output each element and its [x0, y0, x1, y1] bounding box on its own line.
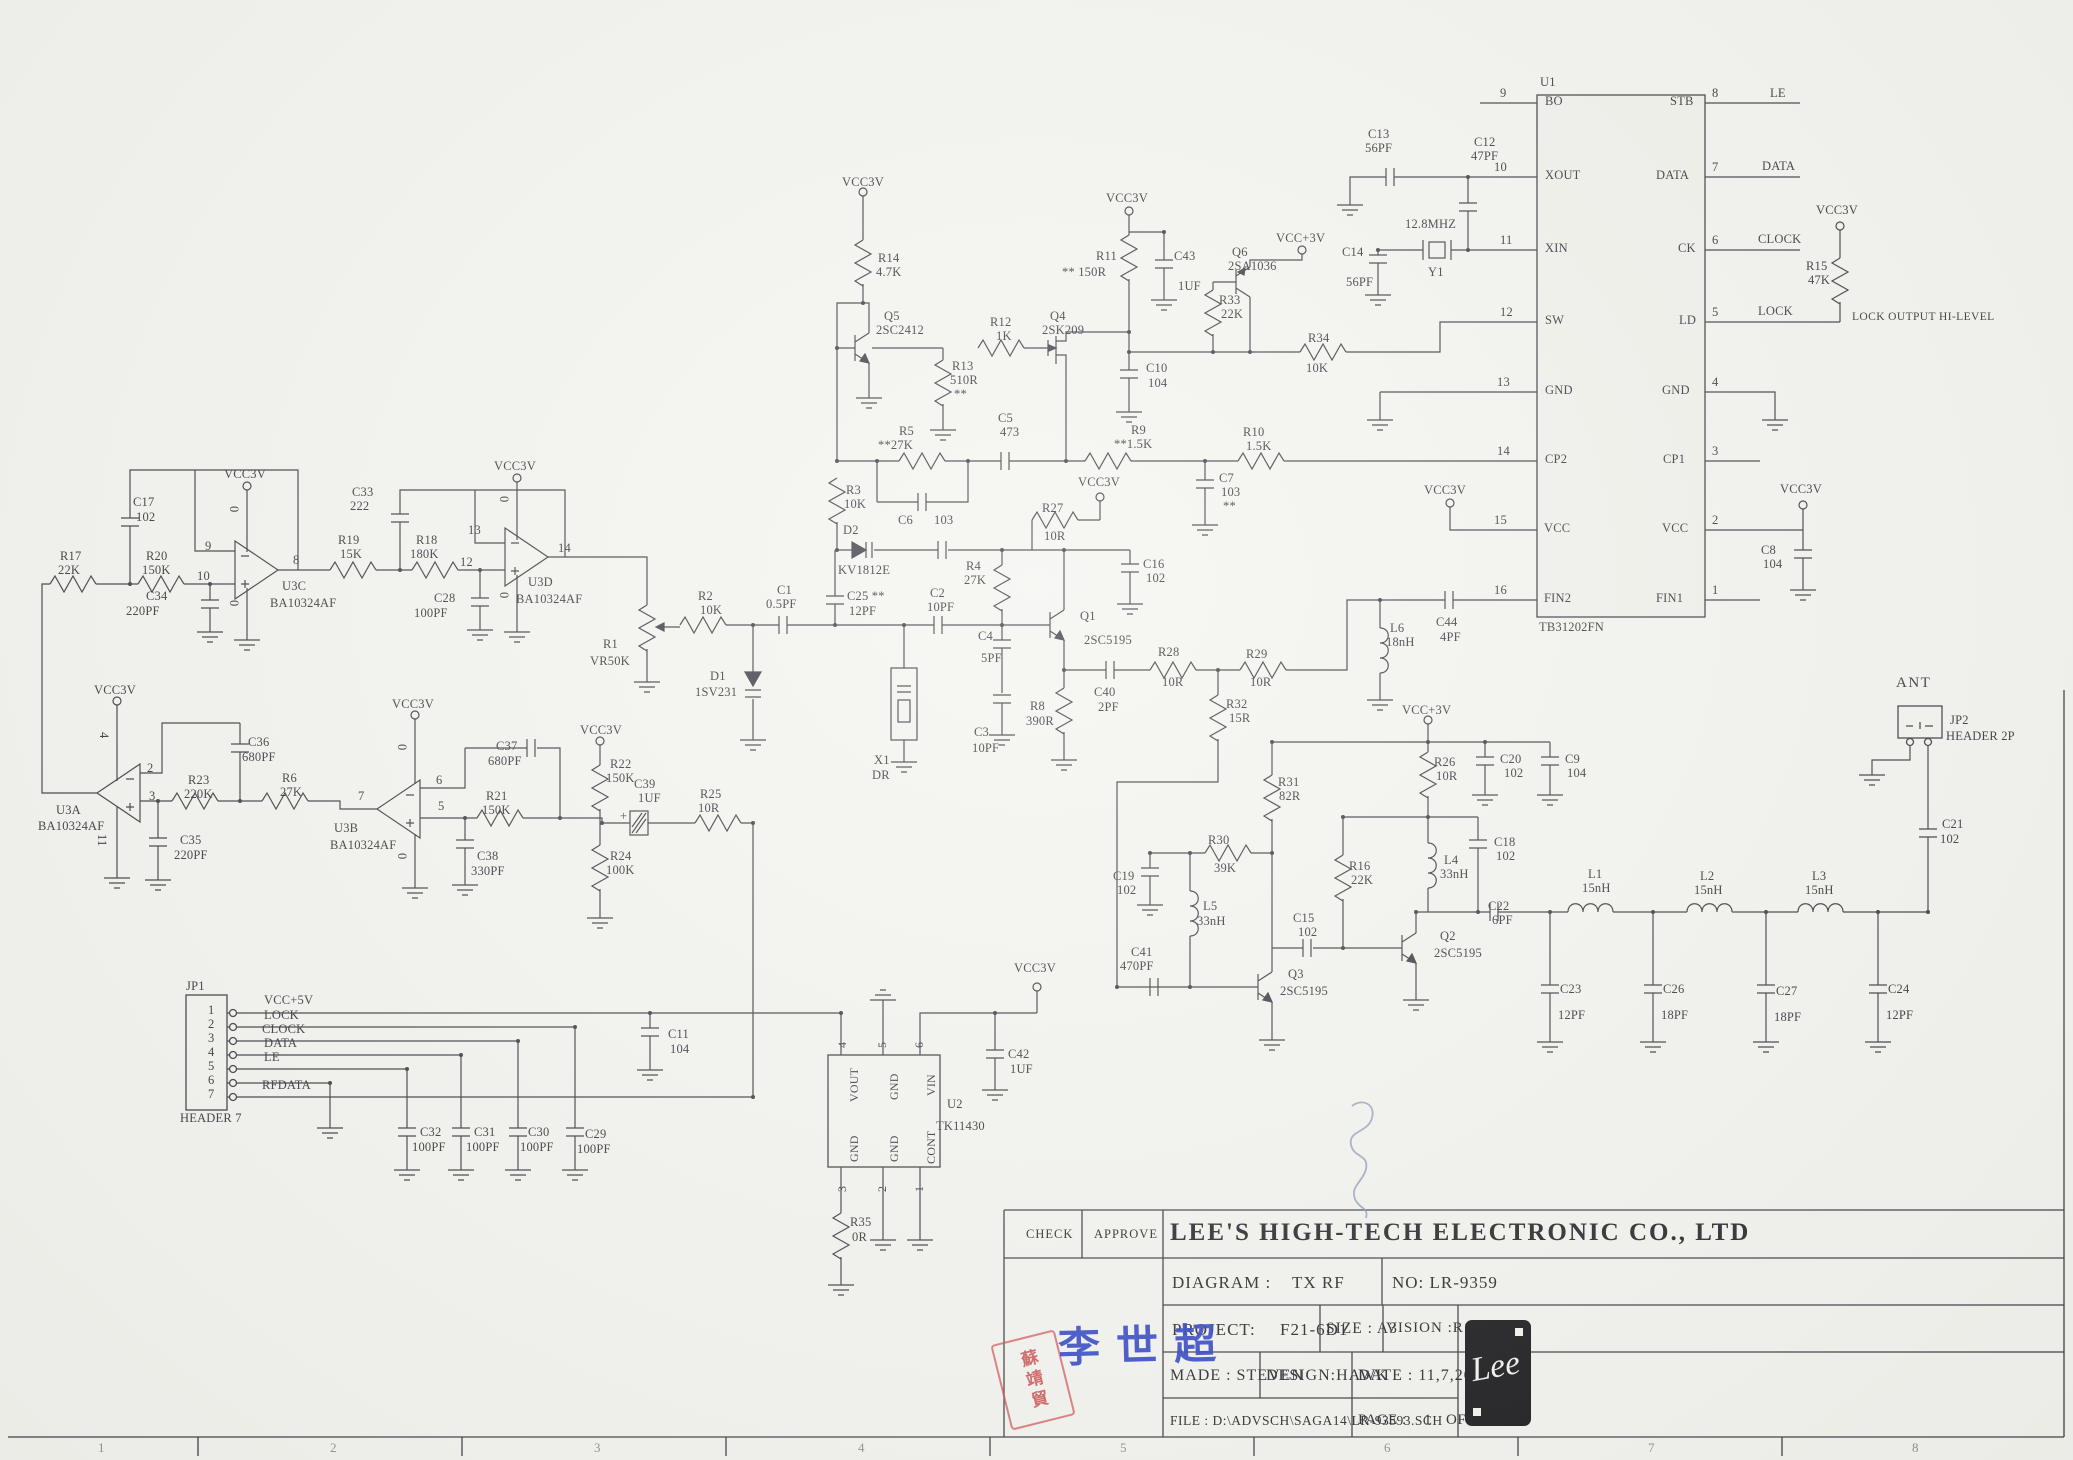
sym-C33 [391, 514, 409, 522]
signature: 李世超 [1057, 1310, 1233, 1376]
label-u3c-p9: 9 [205, 540, 211, 553]
label-u3a-p3: 3 [149, 790, 155, 803]
label-u3b-p7: 7 [358, 790, 364, 803]
label-y1-freq: 12.8MHZ [1405, 218, 1456, 231]
jp1-body [186, 995, 227, 1110]
label-c35-ref: C35 [180, 834, 201, 847]
label-u1-p14: 14 [1497, 445, 1510, 458]
label-ant: ANT [1896, 676, 1931, 691]
label-u3c-part: BA10324AF [270, 597, 336, 610]
sym-R13 [935, 360, 951, 406]
label-u1-xin: XIN [1545, 242, 1568, 255]
sym-L1 [1568, 904, 1613, 912]
label-u1-data: DATA [1656, 169, 1689, 182]
label-r10-val: 1.5K [1246, 440, 1271, 453]
label-x1-ref: X1 [874, 754, 890, 767]
label-u3d-rot-top: 0 [498, 496, 511, 502]
label-r3-val: 10K [844, 498, 866, 511]
label-zone-7: 7 [1648, 1441, 1655, 1454]
label-u3c-rot-top: 0 [228, 506, 241, 512]
sym-L4 [1428, 843, 1436, 888]
label-vcc-u3b: VCC3V [392, 698, 434, 711]
label-c42-val: 1UF [1010, 1063, 1033, 1076]
label-vcc-pin15: VCC3V [1424, 484, 1466, 497]
label-u3a-part: BA10324AF [38, 820, 104, 833]
label-r15-val: 47K [1808, 274, 1830, 287]
sym-Q4-arrow [1049, 345, 1056, 351]
label-vcc-q5: VCC3V [842, 176, 884, 189]
label-jp1-p1: 1 [208, 1004, 214, 1017]
label-r33-val: 22K [1221, 308, 1243, 321]
label-u2-gnd-b1: GND [848, 1135, 860, 1162]
label-c16-ref: C16 [1143, 558, 1164, 571]
sym-C42 [986, 1050, 1004, 1058]
label-c28-val: 100PF [414, 607, 448, 620]
label-c25-ref: C25 ** [847, 590, 885, 603]
label-c22-ref: C22 [1488, 900, 1509, 913]
label-u1-stb: STB [1670, 95, 1694, 108]
check-cell-label: CHECK [1026, 1228, 1073, 1241]
label-u1-p10: 10 [1494, 161, 1507, 174]
label-r22-ref: R22 [610, 758, 631, 771]
sym-R14 [855, 240, 871, 286]
label-r24-val: 100K [606, 864, 635, 877]
diagram-label: DIAGRAM : [1172, 1274, 1271, 1291]
label-q4-val: 2SK209 [1042, 324, 1084, 337]
label-c27-ref: C27 [1776, 985, 1797, 998]
label-u3b-p5: 5 [438, 800, 444, 813]
label-jp1-p2: 2 [208, 1018, 214, 1031]
pot-wiper-arrow-icon [656, 623, 668, 631]
label-net-data2: DATA [264, 1037, 297, 1050]
label-r6-ref: R6 [282, 772, 297, 785]
label-u2-part: TK11430 [936, 1120, 985, 1133]
label-l3-val: 15nH [1805, 884, 1834, 897]
label-r1-ref: R1 [603, 638, 618, 651]
label-u1-sw: SW [1545, 314, 1564, 327]
label-c2-val: 10PF [927, 601, 954, 614]
label-jp1-p6: 6 [208, 1074, 214, 1087]
sym-Q5 [855, 333, 869, 363]
label-c38-val: 330PF [471, 865, 505, 878]
sym-C39-hatch [632, 813, 646, 833]
sym-R25 [695, 815, 741, 831]
label-r3-ref: R3 [846, 484, 861, 497]
label-net-lock2: LOCK [264, 1009, 299, 1022]
label-net-vcc5: VCC+5V [264, 994, 313, 1007]
sym-R4 [994, 565, 1010, 611]
label-c13-ref: C13 [1368, 128, 1389, 141]
company-name: LEE'S HIGH-TECH ELECTRONIC CO., LTD [1170, 1220, 1750, 1245]
label-r28-ref: R28 [1158, 646, 1179, 659]
label-c18-val: 102 [1496, 850, 1515, 863]
label-c40-val: 2PF [1098, 701, 1119, 714]
label-c11-ref: C11 [668, 1028, 689, 1041]
label-c2-ref: C2 [930, 587, 945, 600]
sym-C20 [1476, 757, 1494, 765]
sym-R17 [50, 576, 96, 592]
sym-Q3 [1258, 972, 1272, 1002]
label-u2-p4: 4 [836, 1042, 848, 1048]
label-l5-val: 33nH [1197, 915, 1226, 928]
label-c4-ref: C4 [978, 630, 993, 643]
label-u1-gnd-r: GND [1662, 384, 1690, 397]
label-c43-val: 1UF [1178, 280, 1201, 293]
label-r10-ref: R10 [1243, 426, 1264, 439]
sym-Q1 [1050, 610, 1064, 640]
sym-C15 [1303, 939, 1311, 957]
sym-C2 [934, 616, 942, 634]
sym-C27 [1757, 985, 1775, 993]
label-jp1-part: HEADER 7 [180, 1112, 242, 1125]
label-u2-vout: VOUT [848, 1068, 860, 1102]
label-c39-ref: C39 [634, 778, 655, 791]
label-u3b-ref: U3B [334, 822, 358, 835]
label-d2-val: KV1812E [838, 564, 890, 577]
sym-R8 [1056, 688, 1072, 734]
sym-L2 [1687, 904, 1732, 912]
label-c40-ref: C40 [1094, 686, 1115, 699]
wires-center [726, 196, 1537, 762]
label-u1-p12: 12 [1500, 306, 1513, 319]
label-c4-val: 5PF [981, 652, 1002, 665]
label-u1-vcc-l: VCC [1544, 522, 1570, 535]
sym-C1 [779, 616, 787, 634]
label-c19-ref: C19 [1113, 870, 1134, 883]
label-r20-ref: R20 [146, 550, 167, 563]
label-c27-val: 18PF [1774, 1011, 1801, 1024]
label-u3a-rot-top: 4 [98, 732, 111, 738]
label-u3c-ref: U3C [282, 580, 306, 593]
label-l6-val: 18nH [1386, 636, 1415, 649]
label-y1-ref: Y1 [1428, 266, 1444, 279]
ic-outlines [186, 95, 1942, 1167]
label-r6-val: 27K [280, 786, 302, 799]
label-r17-val: 22K [58, 564, 80, 577]
label-u1-p1: 1 [1712, 584, 1718, 597]
label-c31-ref: C31 [474, 1126, 495, 1139]
label-l1-val: 15nH [1582, 882, 1611, 895]
label-zone-2: 2 [330, 1441, 337, 1454]
label-net-clock2: CLOCK [262, 1023, 305, 1036]
label-u2-gnd-b2: GND [888, 1135, 900, 1162]
sym-L3 [1798, 904, 1843, 912]
label-net-le2: LE [264, 1051, 280, 1064]
label-u2-p1: 1 [913, 1186, 925, 1192]
label-r13-star: ** [954, 388, 967, 401]
label-c1-ref: C1 [777, 584, 792, 597]
label-d2-ref: D2 [843, 524, 859, 537]
label-r1-val: VR50K [590, 655, 630, 668]
jp1-pin-circles [230, 1010, 237, 1101]
sym-U3C [235, 541, 278, 599]
label-c20-ref: C20 [1500, 753, 1521, 766]
label-c41-val: 470PF [1120, 960, 1154, 973]
sym-R2 [680, 617, 726, 633]
label-u2-p5: 5 [876, 1042, 888, 1048]
logo-square-icon [1473, 1408, 1481, 1416]
label-net-lock: LOCK [1758, 305, 1793, 318]
sym-C35 [149, 838, 167, 846]
label-r9-ref: R9 [1131, 424, 1146, 437]
label-u2-ref: U2 [947, 1098, 963, 1111]
label-u1-p5: 5 [1712, 306, 1718, 319]
label-u3d-p14: 14 [558, 542, 571, 555]
page-of-label: OF [1446, 1413, 1466, 1428]
sym-C6 [918, 493, 926, 511]
label-r14-val: 4.7K [876, 266, 901, 279]
label-r20-val: 150K [142, 564, 171, 577]
sym-R11 [1121, 235, 1137, 281]
label-r26-ref: R26 [1434, 756, 1455, 769]
pen-squiggle [1351, 1102, 1373, 1218]
label-c19-val: 102 [1117, 884, 1136, 897]
label-c43-ref: C43 [1174, 250, 1195, 263]
label-u1-p15: 15 [1494, 514, 1507, 527]
label-q2-ref: Q2 [1440, 930, 1456, 943]
label-c24-ref: C24 [1888, 983, 1909, 996]
sym-R1-pot [639, 605, 655, 651]
label-c26-ref: C26 [1663, 983, 1684, 996]
label-l4-ref: L4 [1444, 854, 1458, 867]
label-zone-3: 3 [594, 1441, 601, 1454]
label-c23-ref: C23 [1560, 983, 1581, 996]
label-u2-vin: VIN [925, 1074, 937, 1096]
label-r27-ref: R27 [1042, 502, 1063, 515]
sym-C37 [527, 739, 535, 757]
page-number: 1 [1424, 1413, 1432, 1428]
label-u1-bo: BO [1545, 95, 1563, 108]
sym-R5 [899, 453, 945, 469]
sym-R9 [1085, 453, 1131, 469]
label-c25-val: 12PF [849, 605, 876, 618]
label-r25-val: 10R [698, 802, 719, 815]
label-c7-val: 103 [1221, 486, 1240, 499]
label-r18-ref: R18 [416, 534, 437, 547]
label-u2-p2: 2 [876, 1186, 888, 1192]
label-c28-ref: C28 [434, 592, 455, 605]
label-c41-ref: C41 [1131, 946, 1152, 959]
label-r12-ref: R12 [990, 316, 1011, 329]
label-r13-ref: R13 [952, 360, 973, 373]
label-c11-val: 104 [670, 1043, 689, 1056]
sym-C40 [1106, 661, 1114, 679]
label-l2-val: 15nH [1694, 884, 1723, 897]
label-r34-ref: R34 [1308, 332, 1329, 345]
label-r8-val: 390R [1026, 715, 1054, 728]
label-zone-5: 5 [1120, 1441, 1127, 1454]
label-d1-val: 1SV231 [695, 686, 737, 699]
logo-square-icon [1515, 1328, 1523, 1336]
label-u3d-part: BA10324AF [516, 593, 582, 606]
label-u1-part: TB31202FN [1539, 621, 1604, 634]
sym-R3 [829, 478, 845, 524]
sym-C34 [201, 600, 219, 608]
label-c33-ref: C33 [352, 486, 373, 499]
label-q1-val: 2SC5195 [1084, 634, 1132, 647]
label-r5-ref: R5 [899, 425, 914, 438]
sym-R15 [1832, 258, 1848, 304]
label-r16-ref: R16 [1349, 860, 1370, 873]
label-r2-ref: R2 [698, 590, 713, 603]
sym-C14 [1369, 255, 1387, 263]
label-u3b-rot-bot: 0 [396, 853, 409, 859]
sym-C5 [1001, 452, 1009, 470]
label-l1-ref: L1 [1588, 868, 1602, 881]
logo-text: Lee [1468, 1344, 1523, 1390]
label-u2-cont: CONT [925, 1131, 937, 1164]
label-u2-p6: 6 [913, 1042, 925, 1048]
sym-C29 [566, 1128, 584, 1136]
label-r29-ref: R29 [1246, 648, 1267, 661]
label-c38-ref: C38 [477, 850, 498, 863]
sym-C24 [1869, 985, 1887, 993]
sym-C30 [509, 1128, 527, 1136]
label-vcc-u2: VCC3V [1014, 962, 1056, 975]
label-c29-ref: C29 [585, 1128, 606, 1141]
label-c9-ref: C9 [1565, 753, 1580, 766]
label-q4-ref: Q4 [1050, 310, 1066, 323]
label-r31-ref: R31 [1278, 776, 1299, 789]
diagram-value: TX RF [1292, 1274, 1345, 1291]
label-c21-val: 102 [1940, 833, 1959, 846]
label-vcc-u3a: VCC3V [94, 684, 136, 697]
label-c39-plus: + [620, 810, 627, 823]
label-r35-val: 0R [852, 1231, 867, 1244]
label-u1-cp2: CP2 [1545, 453, 1567, 466]
sym-R32 [1210, 695, 1226, 741]
label-c17-ref: C17 [133, 496, 154, 509]
label-r22-val: 150K [606, 772, 635, 785]
jp2-pin-circles [1907, 739, 1932, 746]
label-r13-val: 510R [950, 374, 978, 387]
sym-C31 [452, 1128, 470, 1136]
label-c14-ref: C14 [1342, 246, 1363, 259]
label-u3a-ref: U3A [56, 804, 81, 817]
label-jp2-ref: JP2 [1950, 714, 1969, 727]
label-r16-val: 22K [1351, 874, 1373, 887]
label-u1-fin2: FIN2 [1544, 592, 1571, 605]
label-l6-ref: L6 [1390, 622, 1404, 635]
label-r15-ref: R15 [1806, 260, 1827, 273]
label-l2-ref: L2 [1700, 870, 1714, 883]
label-r9-val: **1.5K [1114, 438, 1152, 451]
label-u1-p7: 7 [1712, 161, 1718, 174]
label-vcc-u3c: VCC3V [224, 468, 266, 481]
label-vcc-r26: VCC+3V [1402, 704, 1451, 717]
label-vcc-u3d: VCC3V [494, 460, 536, 473]
sym-C8 [1794, 550, 1812, 558]
label-r19-ref: R19 [338, 534, 359, 547]
label-r35-ref: R35 [850, 1216, 871, 1229]
label-c22-val: 6PF [1492, 914, 1513, 927]
label-u3d-p13: 13 [468, 524, 481, 537]
sym-C19 [1141, 868, 1159, 876]
sym-C9 [1541, 757, 1559, 765]
label-r8-ref: R8 [1030, 700, 1045, 713]
label-c29-val: 100PF [577, 1143, 611, 1156]
label-vcc-q6: VCC+3V [1276, 232, 1325, 245]
sym-R19 [330, 562, 376, 578]
sym-C28 [471, 598, 489, 606]
label-r23-val: 220K [184, 788, 213, 801]
label-u1-p6: 6 [1712, 234, 1718, 247]
label-u1-p9: 9 [1500, 87, 1506, 100]
label-c36-ref: C36 [248, 736, 269, 749]
label-r25-ref: R25 [700, 788, 721, 801]
label-c17-val: 102 [136, 511, 155, 524]
label-vcc-r11: VCC3V [1106, 192, 1148, 205]
label-u3c-p10: 10 [197, 570, 210, 583]
label-r31-val: 82R [1279, 790, 1300, 803]
label-r27-val: 10R [1044, 530, 1065, 543]
label-u1-ld: LD [1679, 314, 1696, 327]
label-c30-val: 100PF [520, 1141, 554, 1154]
sym-R35 [833, 1213, 849, 1259]
label-c42-ref: C42 [1008, 1048, 1029, 1061]
label-c1-val: 0.5PF [766, 598, 797, 611]
label-c35-val: 220PF [174, 849, 208, 862]
label-c9-val: 104 [1567, 767, 1586, 780]
label-q3-ref: Q3 [1288, 968, 1304, 981]
label-q3-val: 2SC5195 [1280, 985, 1328, 998]
label-u1-p13: 13 [1497, 376, 1510, 389]
company-logo: Lee [1465, 1320, 1531, 1426]
label-q6-val: 2SA1036 [1228, 260, 1277, 273]
label-c5-ref: C5 [998, 412, 1013, 425]
label-r12-val: 1K [996, 330, 1012, 343]
sym-C21 [1919, 829, 1937, 837]
label-u3a-rot-bot: 11 [96, 834, 109, 846]
label-u3d-p12: 12 [460, 556, 473, 569]
label-r24-ref: R24 [610, 850, 631, 863]
label-net-rfdata: RFDATA [262, 1079, 311, 1092]
label-vcc-c8: VCC3V [1780, 483, 1822, 496]
label-r18-val: 180K [410, 548, 439, 561]
sym-C10 [1120, 370, 1138, 378]
label-u3c-rot-bot: 0 [228, 600, 241, 606]
label-zone-1: 1 [98, 1441, 105, 1454]
label-u3b-p6: 6 [436, 774, 442, 787]
label-r14-ref: R14 [878, 252, 899, 265]
label-u1-p2: 2 [1712, 514, 1718, 527]
label-c10-val: 104 [1148, 377, 1167, 390]
label-vcc-r15: VCC3V [1816, 204, 1858, 217]
label-c3-val: 10PF [972, 742, 999, 755]
label-c13-val: 56PF [1365, 142, 1392, 155]
label-u1-p4: 4 [1712, 376, 1718, 389]
label-u1-vcc-r: VCC [1662, 522, 1688, 535]
sym-D2-cap [938, 541, 946, 559]
label-net-le: LE [1770, 87, 1786, 100]
label-c31-val: 100PF [466, 1141, 500, 1154]
label-u3b-rot-top: 0 [396, 744, 409, 750]
sym-R34 [1300, 344, 1346, 360]
label-c23-val: 12PF [1558, 1009, 1585, 1022]
sym-C25 [826, 596, 844, 604]
label-u3c-p8: 8 [293, 554, 299, 567]
label-r2-val: 10K [700, 604, 722, 617]
label-r4-val: 27K [964, 574, 986, 587]
sym-R30 [1205, 845, 1251, 861]
label-u1-p3: 3 [1712, 445, 1718, 458]
label-c10-ref: C10 [1146, 362, 1167, 375]
sym-Q2 [1402, 933, 1416, 963]
label-c32-ref: C32 [420, 1126, 441, 1139]
label-q6-ref: Q6 [1232, 246, 1248, 259]
sym-C4 [993, 640, 1011, 648]
label-u1-fin1: FIN1 [1656, 592, 1683, 605]
